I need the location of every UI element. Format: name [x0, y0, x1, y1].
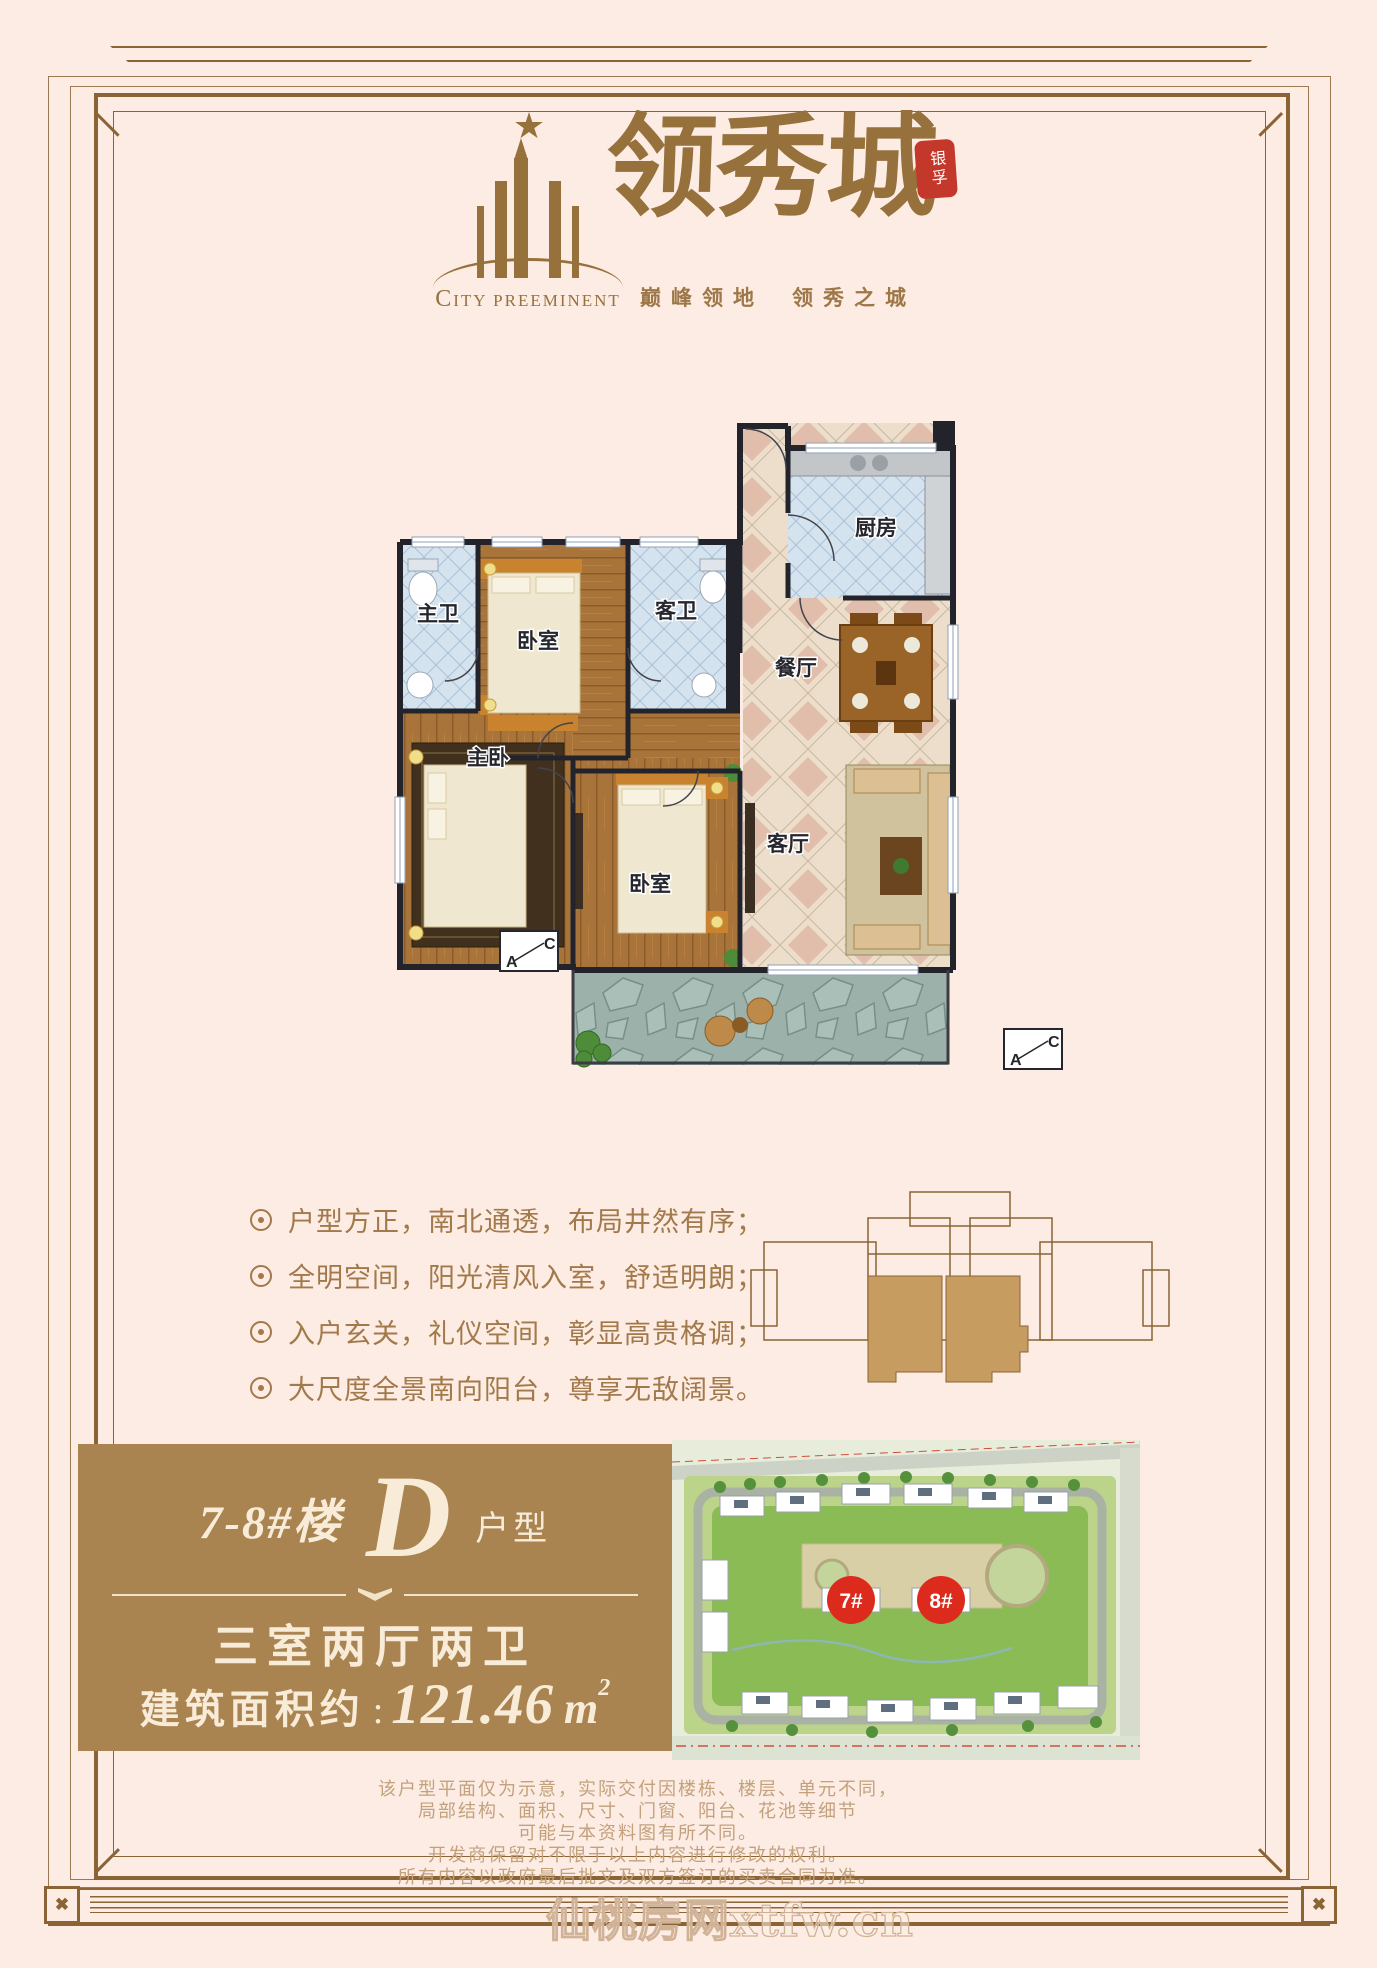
feature-item: 入户玄关，礼仪空间，彰显高贵格调； — [250, 1312, 764, 1351]
frame-bevel-top-right — [1258, 112, 1282, 136]
flyer-page: ✖ ✖ ★ CITY PREEMINENT 领秀城 银孚 巅峰领地领秀之城 — [0, 0, 1377, 1968]
area-label: 建筑面积约 — [140, 1677, 365, 1735]
slogan-left: 巅峰领地 — [640, 287, 764, 310]
corner-x-icon: ✖ — [1301, 1886, 1337, 1924]
feature-text: 入户玄关，礼仪空间，彰显高贵格调； — [288, 1312, 764, 1351]
marker-c-label: C — [1048, 1034, 1060, 1051]
disclaimer: 该户型平面仅为示意，实际交付因楼栋、楼层、单元不同， 局部结构、面积、尺寸、门窗… — [238, 1778, 1038, 1888]
building-spire-icon — [514, 138, 528, 160]
highlighted-unit — [868, 1276, 1028, 1382]
feature-text: 全明空间，阳光清风入室，舒适明朗； — [288, 1256, 764, 1295]
disclaimer-line: 该户型平面仅为示意，实际交付因楼栋、楼层、单元不同， — [238, 1778, 1038, 1800]
marker-a-label: A — [506, 954, 518, 971]
feature-item: 全明空间，阳光清风入室，舒适明朗； — [250, 1256, 764, 1295]
frame-bevel-top-left — [95, 112, 119, 136]
brand-slogan: 巅峰领地领秀之城 — [640, 282, 916, 312]
disclaimer-line: 可能与本资料图有所不同。 — [238, 1822, 1038, 1844]
feature-text: 大尺度全景南向阳台，尊享无敌阔景。 — [288, 1368, 764, 1407]
building-8-marker: 8# — [917, 1576, 965, 1624]
bullet-icon — [250, 1265, 272, 1287]
corner-x-icon: ✖ — [44, 1886, 80, 1924]
unit-layout: 三室两厅两卫 — [78, 1610, 672, 1675]
wall-pier — [726, 542, 740, 711]
site-plan: 7# 8# — [672, 1440, 1140, 1760]
room-label: 厨房 — [855, 516, 897, 540]
room-label: 主卫 — [417, 603, 459, 626]
floor-plan: A C A C 主卫 卧室 客卫 厨房 餐厅 主卧 卧室 客厅 — [388, 413, 1078, 1078]
building-number: 7-8#楼 — [199, 1483, 342, 1566]
room-label: 卧室 — [517, 629, 559, 653]
top-ribbon-ornament — [110, 46, 1268, 62]
disclaimer-line: 开发商保留对不限于以上内容进行修改的权利。 — [238, 1844, 1038, 1866]
unit-area-row: 建筑面积约 : 121.46 m2 — [78, 1672, 672, 1737]
room-label: 主卧 — [467, 747, 509, 770]
bullet-icon — [250, 1209, 272, 1231]
frame-bevel-bottom-right — [1258, 1848, 1282, 1872]
building-7-marker: 7# — [827, 1576, 875, 1624]
feature-item: 大尺度全景南向阳台，尊享无敌阔景。 — [250, 1368, 764, 1407]
brand-name-en: CITY PREEMINENT — [415, 286, 641, 313]
slogan-right: 领秀之城 — [792, 287, 916, 310]
unit-info-panel: 7-8#楼 D 户型 三室两厅两卫 建筑面积约 : 121.46 m2 — [78, 1444, 672, 1751]
area-separator: : — [373, 1689, 384, 1733]
marker-8-label: 8# — [929, 1590, 953, 1613]
marker-c-label: C — [544, 936, 556, 953]
feature-item: 户型方正，南北通透，布局井然有序； — [250, 1200, 764, 1239]
room-label: 卧室 — [629, 872, 671, 896]
unit-title-row: 7-8#楼 D 户型 — [78, 1448, 672, 1566]
area-value: 121.46 — [391, 1672, 554, 1737]
section-marker: A C — [1004, 1029, 1062, 1069]
area-unit: m2 — [564, 1675, 610, 1734]
disclaimer-line: 局部结构、面积、尺寸、门窗、阳台、花池等细节 — [238, 1800, 1038, 1822]
building-key-plan — [750, 1186, 1170, 1386]
unit-type-letter: D — [366, 1469, 451, 1566]
bullet-icon — [250, 1321, 272, 1343]
site-watermark: 仙桃房网xtfw.cn — [546, 1884, 914, 1949]
seal-text: 银孚 — [923, 149, 950, 189]
unit-type-suffix: 户型 — [475, 1501, 551, 1566]
brand-building-icon: ★ CITY PREEMINENT — [433, 126, 623, 306]
section-marker: A C — [500, 931, 558, 971]
room-label: 客厅 — [767, 832, 809, 856]
brand-name-zh: 领秀城 — [604, 104, 938, 233]
room-label: 客卫 — [655, 599, 697, 623]
feature-list: 户型方正，南北通透，布局井然有序； 全明空间，阳光清风入室，舒适明朗； 入户玄关… — [250, 1200, 764, 1424]
feature-text: 户型方正，南北通透，布局井然有序； — [288, 1200, 764, 1239]
marker-a-label: A — [1010, 1052, 1022, 1069]
seal-stamp: 银孚 — [914, 139, 958, 200]
divider-ornament-icon — [346, 1585, 404, 1605]
marker-7-label: 7# — [839, 1590, 863, 1613]
room-label: 餐厅 — [775, 656, 817, 680]
bullet-icon — [250, 1377, 272, 1399]
frame-bevel-bottom-left — [95, 1848, 119, 1872]
